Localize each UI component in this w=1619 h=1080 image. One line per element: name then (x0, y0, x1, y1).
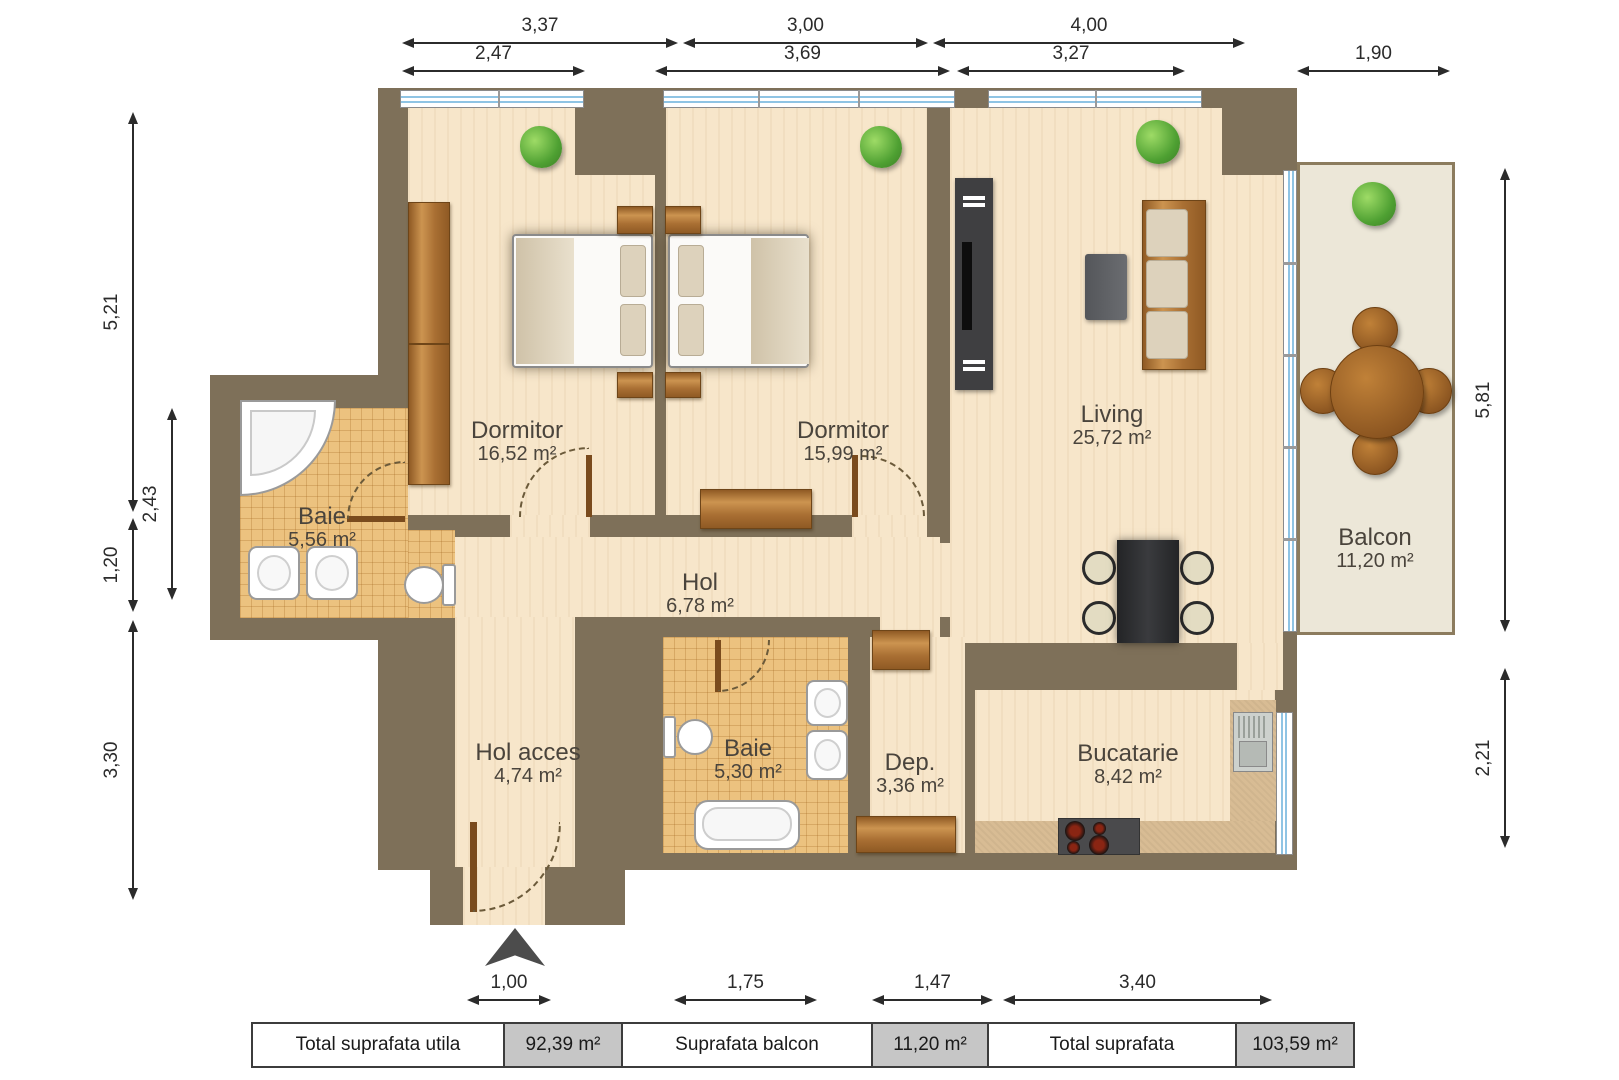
room-area: 15,99 m² (733, 443, 953, 466)
nightstand (665, 206, 701, 234)
dimension-left-120: 1,20 (132, 518, 134, 612)
dimension-value: 1,20 (101, 547, 123, 584)
burner (1093, 822, 1106, 835)
dimension-bottom-340: 3,40 (1003, 999, 1272, 1001)
sink-basin (257, 555, 291, 591)
summary-value: 11,20 m² (871, 1024, 987, 1066)
room-name: Bucatarie (1018, 741, 1238, 766)
dimension-left-330: 3,30 (132, 620, 134, 900)
nightstand (617, 206, 653, 234)
bed-blanket (751, 238, 809, 364)
shelf-books (963, 196, 985, 200)
bathtub (694, 800, 800, 850)
room-label-dormitor-1: Dormitor 16,52 m² (407, 418, 627, 466)
window-pane-divider (498, 90, 500, 108)
tv-unit (955, 178, 993, 390)
summary-label: Total suprafata utila (253, 1024, 503, 1066)
sofa-cushion (1146, 311, 1188, 359)
nightstand (617, 372, 653, 398)
bathtub-basin (250, 410, 316, 476)
room-label-dormitor-2: Dormitor 15,99 m² (733, 418, 953, 466)
room-area: 11,20 m² (1265, 550, 1485, 573)
dimension-bottom-147: 1,47 (872, 999, 993, 1001)
dimension-value: 1,90 (1297, 43, 1450, 65)
window-dormitor-2 (663, 90, 955, 108)
bed-dormitor-1 (512, 234, 653, 368)
storage-shelf (856, 816, 956, 853)
room-area: 5,56 m² (212, 529, 432, 552)
tv-screen (962, 242, 972, 330)
window-pane-divider (758, 90, 760, 108)
dimension-value: 1,47 (872, 972, 993, 994)
dimension-value: 5,21 (101, 294, 123, 331)
room-name: Dormitor (733, 418, 953, 443)
room-area: 8,42 m² (1018, 766, 1238, 789)
room-name: Dep. (800, 750, 1020, 775)
floor-hol-living-passage (940, 543, 950, 617)
room-area: 6,78 m² (590, 595, 810, 618)
shelf-books (963, 360, 985, 364)
dimension-value: 3,69 (655, 43, 950, 65)
room-name: Dormitor (407, 418, 627, 443)
dimension-value: 5,81 (1473, 382, 1495, 419)
plant-icon (860, 126, 902, 168)
dimension-bottom-175: 1,75 (674, 999, 817, 1001)
plant-icon (1352, 182, 1396, 226)
dimension-left-243: 2,43 (171, 408, 173, 600)
sofa (1142, 200, 1206, 370)
bed-pillow (678, 304, 704, 356)
dimension-right-221: 2,21 (1504, 668, 1506, 848)
wall-topright-corner (1222, 88, 1297, 175)
room-label-baie-1: Baie 5,56 m² (212, 504, 432, 552)
dimension-top-247: 2,47 (402, 70, 585, 72)
bed-blanket (516, 238, 574, 364)
floor-bed2-doorway (852, 515, 927, 537)
plant-icon (1136, 120, 1180, 164)
room-name: Balcon (1265, 525, 1485, 550)
dimension-value: 1,75 (674, 972, 817, 994)
bathtub-basin (702, 807, 792, 841)
dimension-value: 3,00 (683, 15, 928, 37)
dimension-value: 4,00 (933, 15, 1245, 37)
dresser-chest (700, 489, 812, 529)
room-name: Hol acces (418, 740, 638, 765)
area-summary-table: Total suprafata utila 92,39 m² Suprafata… (251, 1022, 1355, 1068)
dimension-value: 1,00 (467, 972, 551, 994)
bed-dormitor-2 (668, 234, 809, 368)
room-label-dep: Dep. 3,36 m² (800, 750, 1020, 798)
dining-chair (1180, 601, 1214, 635)
entrance-arrow-icon (485, 928, 545, 966)
wall-center-column (575, 108, 666, 175)
sofa-cushion (1146, 209, 1188, 257)
dimension-top-190: 1,90 (1297, 70, 1450, 72)
shelf-books (963, 367, 985, 371)
room-area: 16,52 m² (407, 443, 627, 466)
floor-bed1-doorway (510, 515, 590, 537)
room-label-living: Living 25,72 m² (1002, 402, 1222, 450)
dimension-left-521: 5,21 (132, 112, 134, 512)
floor-kitchen-entrance (1237, 643, 1283, 690)
dining-chair (1082, 601, 1116, 635)
dimension-value: 3,27 (957, 43, 1185, 65)
drainboard (1238, 716, 1268, 738)
burner (1089, 835, 1109, 855)
balcony-round-table (1330, 345, 1424, 439)
window-dormitor-1 (400, 90, 584, 108)
toilet-bowl (404, 566, 444, 604)
burner (1067, 841, 1080, 854)
sink-basin (315, 555, 349, 591)
sink (248, 546, 300, 600)
room-name: Hol (590, 570, 810, 595)
summary-value: 103,59 m² (1235, 1024, 1353, 1066)
kitchen-sink-unit (1233, 712, 1273, 772)
dimension-value: 2,47 (402, 43, 585, 65)
floor-plan-canvas: Dormitor 16,52 m² Dormitor 15,99 m² Livi… (0, 0, 1619, 1080)
dining-table (1117, 540, 1179, 643)
dining-chair (1180, 551, 1214, 585)
shelf-books (963, 203, 985, 207)
bed-pillow (620, 304, 646, 356)
wardrobe-divider (409, 343, 449, 345)
bed-pillow (678, 245, 704, 297)
room-name: Baie (212, 504, 432, 529)
room-area: 3,36 m² (800, 775, 1020, 798)
window-kitchen (1276, 712, 1293, 855)
dimension-value: 2,21 (1473, 740, 1495, 777)
window-pane-divider (1283, 446, 1297, 449)
sink (306, 546, 358, 600)
room-area: 25,72 m² (1002, 427, 1222, 450)
summary-value: 92,39 m² (503, 1024, 621, 1066)
stove (1058, 818, 1140, 855)
dimension-right-581: 5,81 (1504, 168, 1506, 632)
toilet (404, 562, 456, 608)
sink (806, 680, 848, 726)
summary-label: Suprafata balcon (621, 1024, 871, 1066)
dimension-top-327: 3,27 (957, 70, 1185, 72)
room-label-bucatarie: Bucatarie 8,42 m² (1018, 741, 1238, 789)
storage-shelf (872, 630, 930, 670)
window-pane-divider (1283, 262, 1297, 265)
window-pane-divider (858, 90, 860, 108)
burner (1065, 821, 1085, 841)
window-pane-divider (1095, 90, 1097, 108)
nightstand (665, 372, 701, 398)
bed-pillow (620, 245, 646, 297)
dimension-value: 3,37 (402, 15, 678, 37)
toilet-tank (442, 564, 456, 606)
coffee-table (1085, 254, 1127, 320)
sofa-cushion (1146, 260, 1188, 308)
sink-basin (1239, 741, 1267, 767)
sink-basin (814, 688, 841, 718)
room-area: 4,74 m² (418, 765, 638, 788)
dimension-bottom-100: 1,00 (467, 999, 551, 1001)
room-label-hol-acces: Hol acces 4,74 m² (418, 740, 638, 788)
room-label-hol: Hol 6,78 m² (590, 570, 810, 618)
plant-icon (520, 126, 562, 168)
dimension-top-369: 3,69 (655, 70, 950, 72)
room-name: Living (1002, 402, 1222, 427)
dimension-value: 3,30 (101, 742, 123, 779)
dimension-value: 2,43 (140, 486, 162, 523)
summary-label: Total suprafata (987, 1024, 1235, 1066)
window-pane-divider (1283, 354, 1297, 357)
dimension-value: 3,40 (1003, 972, 1272, 994)
dining-chair (1082, 551, 1116, 585)
room-label-balcon: Balcon 11,20 m² (1265, 525, 1485, 573)
